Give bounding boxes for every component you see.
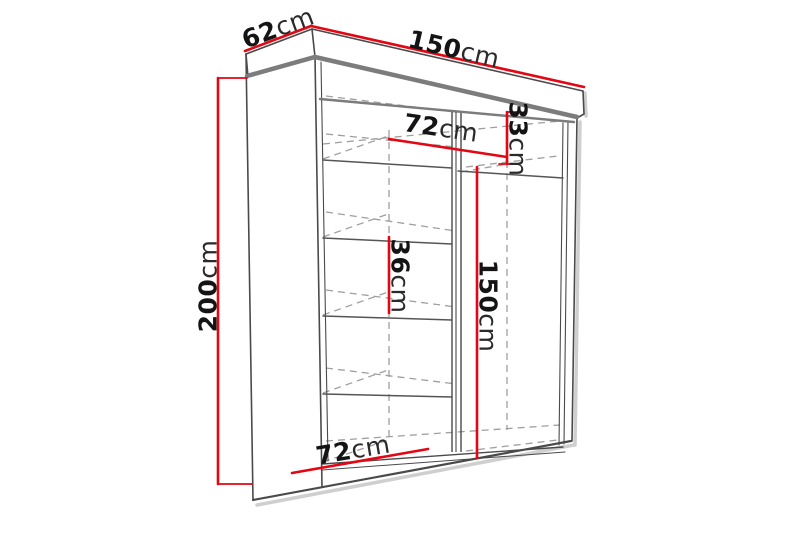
dim-top-compartment-height-unit: cm <box>504 137 533 176</box>
dim-hanging-section-height-unit: cm <box>474 313 503 352</box>
dim-top-compartment-height-label: 33cm <box>506 102 531 177</box>
dim-height-unit: cm <box>194 240 223 279</box>
dim-left-section-bottom-width-value: 72 <box>314 436 354 471</box>
cabinet-body <box>246 27 584 500</box>
dim-shelf-spacing-value: 36 <box>386 239 415 275</box>
dim-shelf-spacing-unit: cm <box>386 274 415 313</box>
dim-height-label: 200cm <box>196 240 221 333</box>
dim-hanging-section-height-value: 150 <box>474 260 503 314</box>
dim-top-compartment-height-value: 33 <box>504 102 533 138</box>
dim-shelf-spacing-label: 36cm <box>388 239 413 314</box>
dim-height-value: 200 <box>194 279 223 333</box>
dim-hanging-section-height-label: 150cm <box>476 260 501 353</box>
dim-left-section-top-width-value: 72 <box>402 108 442 142</box>
dim-left-section-top-width-unit: cm <box>437 113 480 147</box>
wardrobe-diagram: 62cm 150cm 200cm 72cm 33cm 36cm 150cm 72… <box>0 0 800 533</box>
